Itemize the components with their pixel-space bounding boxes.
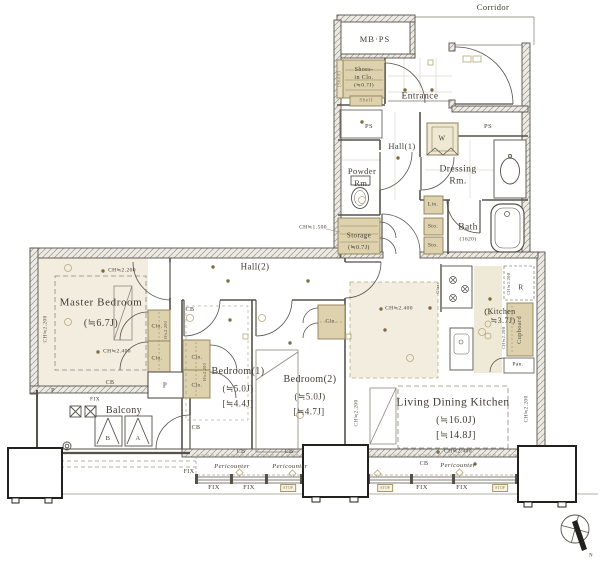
cb-label: CB <box>106 380 115 386</box>
cb-label: CB <box>237 449 246 455</box>
shoes-closet-label: Shoes- <box>355 67 374 73</box>
fix-label: FIX <box>416 485 428 492</box>
closet-label: Clo. <box>326 319 337 325</box>
fix-label: FIX <box>90 397 100 403</box>
ps-right-label: PS <box>484 124 492 131</box>
ch-label: CH≒2.400 <box>444 449 472 455</box>
fix-label: FIX <box>184 469 195 475</box>
ch-1500-label: CH≒1.500 <box>299 225 327 231</box>
bedroom2-label: Bedroom(2) <box>284 375 337 385</box>
compass-north-label: N <box>589 554 593 559</box>
ch-label: CH≒2.200 <box>502 327 507 350</box>
pericounter-label: Pericounter <box>214 464 249 471</box>
bedroom1-label: Bedroom(1) <box>212 367 265 377</box>
powder-room-label: Rm. <box>354 179 370 188</box>
ldk-size: (≒16.0J) <box>436 416 476 426</box>
storage-small-label: Sto. <box>428 243 438 249</box>
ch-label: CH≒2.400 <box>385 306 413 312</box>
kitchen-size: ≒3.7J) <box>491 317 516 325</box>
fix-label: FIX <box>243 485 255 492</box>
master-bedroom-label: Master Bedroom <box>60 298 143 309</box>
closet-label: Clo. <box>192 383 203 389</box>
storage-small-label: Sto. <box>428 224 438 230</box>
vanity-icon <box>494 140 526 198</box>
bedroom2-size: (≒5.0J) <box>294 393 325 402</box>
cb-label: CB <box>285 449 294 455</box>
fix-label: FIX <box>456 485 468 492</box>
floorplan-drawing <box>0 0 602 562</box>
shoes-closet-size: (≒0.7J) <box>354 83 374 89</box>
compass-icon <box>561 515 589 551</box>
balcony-unit-a: A <box>135 436 140 443</box>
ps-left-label: PS <box>365 124 373 131</box>
balcony-rail <box>37 390 190 453</box>
stop-tag: STOP <box>280 484 296 492</box>
bathtub-icon <box>491 204 524 252</box>
storage-label: Storage <box>347 233 371 240</box>
closet-label: Clo. <box>152 356 163 362</box>
ch-label: CH≒2.200 <box>43 315 49 342</box>
balcony-label: Balcony <box>106 406 142 416</box>
bedroom1-size: (≒5.0J) <box>222 385 253 394</box>
balcony-unit-b: B <box>106 436 111 443</box>
pillar-label: P <box>163 383 167 390</box>
stop-tag: STOP <box>492 484 508 492</box>
ch-label: CH≒2.200 <box>354 399 360 426</box>
glass-label: Glass <box>436 282 441 294</box>
washer-label: W <box>438 136 445 143</box>
cb-label: CB <box>186 307 195 313</box>
ch-label: CH≒2.200 <box>507 273 512 296</box>
pillar-label: P <box>51 388 55 395</box>
shelf-side-label: (Shelf) <box>338 71 343 87</box>
closet-label: Clo. <box>152 324 163 330</box>
pericounter-label: Pericounter <box>440 463 475 470</box>
cb-label: CB <box>192 425 201 431</box>
kitchen-island-icon <box>450 328 473 370</box>
ldk-label: Living Dining Kitchen <box>396 397 509 409</box>
storage-size: (≒0.7J) <box>348 245 370 251</box>
kitchen-label: (Kitchen <box>484 308 515 316</box>
shelf-label: Shelf <box>359 98 373 104</box>
stop-tag: STOP <box>377 484 393 492</box>
closet-height-label: H≒2.200 <box>164 321 168 339</box>
ch-label: CH≒2.400 <box>103 349 131 355</box>
cb-label: CB <box>420 461 429 467</box>
closet-height-label: H≒2.200 <box>203 363 207 381</box>
shoes-closet-label: in Clo. <box>354 75 373 81</box>
pericounter-label: Pericounter <box>272 464 307 471</box>
entrance-label: Entrance <box>402 92 439 102</box>
corridor-label: Corridor <box>477 3 509 12</box>
hall1-label: Hall(1) <box>388 142 415 151</box>
dressing-room-label: Dressing <box>440 165 477 175</box>
dressing-room-label: Rm. <box>449 177 466 187</box>
ps-shaft-left <box>340 110 382 138</box>
cupboard-label: Cupboard <box>517 316 524 344</box>
closet-label: Clo. <box>192 355 203 361</box>
ldk-size: [≒14.8J] <box>436 431 476 441</box>
pantry-label: Pan. <box>512 362 523 368</box>
ch-label: CH≒2.200 <box>108 268 136 274</box>
linen-label: Lin. <box>428 202 439 208</box>
powder-room-label: Powder <box>348 167 376 176</box>
refrigerator-label: R <box>518 283 523 291</box>
bedroom2-size: [≒4.7J] <box>293 408 324 417</box>
mbps-label: MB·PS <box>360 35 391 44</box>
bath-label: Bath <box>458 223 478 233</box>
bath-size: (1620) <box>459 237 476 243</box>
fix-label: FIX <box>208 485 220 492</box>
ch-label: CH≒2.200 <box>524 395 530 422</box>
stove-icon <box>441 264 472 312</box>
floorplan: Corridor MB·PS Shoes- in Clo. (≒0.7J) (S… <box>0 0 602 562</box>
hall2-label: Hall(2) <box>241 263 270 272</box>
master-bedroom-size: (≒6.7J) <box>84 319 118 329</box>
bedroom1-size: [≒4.4J] <box>222 400 253 409</box>
